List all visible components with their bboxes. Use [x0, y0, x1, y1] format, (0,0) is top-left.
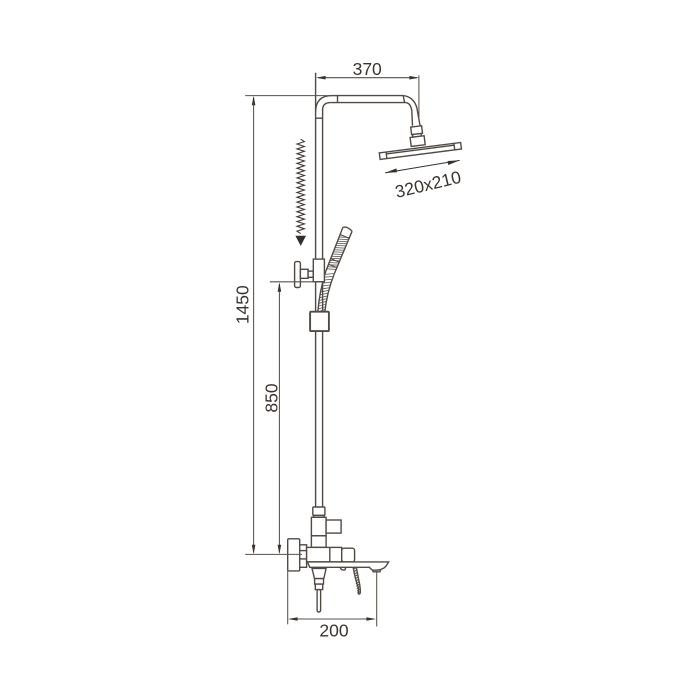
svg-text:320x210: 320x210: [393, 167, 463, 202]
svg-text:200: 200: [319, 621, 348, 641]
svg-text:370: 370: [353, 59, 382, 79]
svg-text:1450: 1450: [232, 285, 252, 324]
svg-text:850: 850: [261, 383, 281, 412]
